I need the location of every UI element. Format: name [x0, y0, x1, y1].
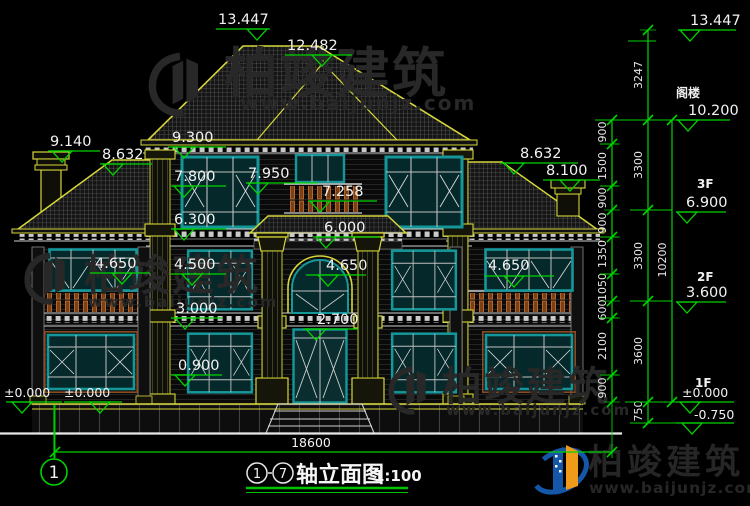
brand-logo: 柏竣建筑 www.baijunjz.com	[526, 441, 750, 500]
window-2f-right	[392, 251, 456, 310]
attic-label: 阁楼	[676, 85, 700, 100]
elev-8100: 8.100	[546, 163, 588, 179]
elev-9300: 9.300	[172, 130, 214, 146]
attic-elev: 10.200	[688, 103, 739, 119]
elev-4500: 4.500	[174, 257, 216, 273]
level-triangle	[677, 212, 697, 223]
watermark-website: www.baijunjz.com	[240, 91, 476, 115]
floor-dim: 750	[632, 401, 645, 422]
panel-top-elev: 13.447	[690, 13, 741, 29]
seg-dim: 1050	[596, 273, 609, 301]
seg-dim: 600	[596, 300, 609, 321]
elev-2700: 2.700	[317, 312, 359, 328]
brand-website: www.baijunjz.com	[589, 479, 750, 497]
total-height-dim: 10200	[656, 243, 669, 278]
title-axis-start: 1	[253, 467, 261, 482]
window-1f-wing-left	[45, 332, 137, 392]
window-3f-right	[386, 157, 462, 227]
elev-ridge: 13.447	[218, 12, 269, 28]
cad-drawing-screenshot: 柏竣建筑 www.baijunjz.com 柏竣建筑 www.baijunjz.…	[0, 0, 750, 506]
level-triangle	[12, 402, 32, 413]
elev-7258: 7.258	[322, 184, 364, 200]
window-3f-center	[296, 155, 344, 182]
level-triangle	[678, 120, 698, 131]
elev-chimney: 9.140	[50, 134, 92, 150]
elev-6300: 6.300	[174, 212, 216, 228]
floor-dim: 3300	[632, 242, 645, 270]
elev-ground-b: ±0.000	[64, 385, 110, 400]
brand-logo-icon	[526, 441, 593, 500]
watermark-website: www.baijunjz.com	[446, 401, 631, 419]
title-name: 轴立面图	[296, 462, 384, 488]
level-triangle	[682, 423, 702, 434]
seg-dim: 1350	[596, 240, 609, 268]
level-triangle	[680, 30, 700, 41]
elev-0900: 0.900	[178, 358, 220, 374]
title-scale: 1:100	[374, 467, 422, 485]
elev-7800: 7.800	[174, 169, 216, 185]
elev-wing-balcony: 4.650	[95, 256, 137, 272]
seg-dim: 2100	[596, 332, 609, 360]
seg-dim: 1500	[596, 152, 609, 180]
elevation-drawing: 柏竣建筑 www.baijunjz.com 柏竣建筑 www.baijunjz.…	[0, 0, 750, 506]
title-axis-end: 7	[279, 467, 287, 482]
title-block: 1 7 轴立面图 1:100	[246, 462, 422, 493]
floor3-label: 3F	[697, 177, 714, 191]
overall-width-dim: 18600	[291, 435, 331, 450]
seg-dim: 900	[596, 378, 609, 399]
floor1-elev: ±0.000	[682, 385, 728, 400]
bottom-area: 18600 1 1 7 轴立面图 1:100	[41, 435, 422, 493]
elev-3000: 3.000	[176, 301, 218, 317]
level-triangle	[247, 29, 267, 40]
floor2-label: 2F	[697, 270, 714, 284]
level-triangle	[677, 302, 697, 313]
entrance-door	[294, 330, 347, 404]
basement-elev: -0.750	[694, 407, 734, 422]
floor-dim: 3300	[632, 151, 645, 179]
elev-ground-a: ±0.000	[4, 385, 50, 400]
elev-right-eave: 8.632	[520, 146, 562, 162]
floor3-elev: 6.900	[686, 195, 728, 211]
elev-left-eave: 8.632	[102, 147, 144, 163]
right-dimension-panel: 13.447 阁楼 10.200 3F 6.900 2F 3.600 1F ±0…	[596, 13, 741, 422]
roof-left-wing	[14, 160, 152, 232]
elev-6000: 6.000	[324, 220, 366, 236]
floor-dim: 3600	[632, 337, 645, 365]
seg-dim: 900	[596, 213, 609, 234]
elev-ridge2: 12.482	[287, 38, 338, 54]
elev-4650-right: 4.650	[488, 258, 530, 274]
floor2-elev: 3.600	[686, 285, 728, 301]
floor-dim: 3247	[632, 61, 645, 89]
elev-4650-center: 4.650	[326, 258, 368, 274]
elev-7950: 7.950	[248, 166, 290, 182]
axis-bubble-number: 1	[49, 463, 60, 483]
brand-company: 柏竣建筑	[588, 442, 744, 483]
